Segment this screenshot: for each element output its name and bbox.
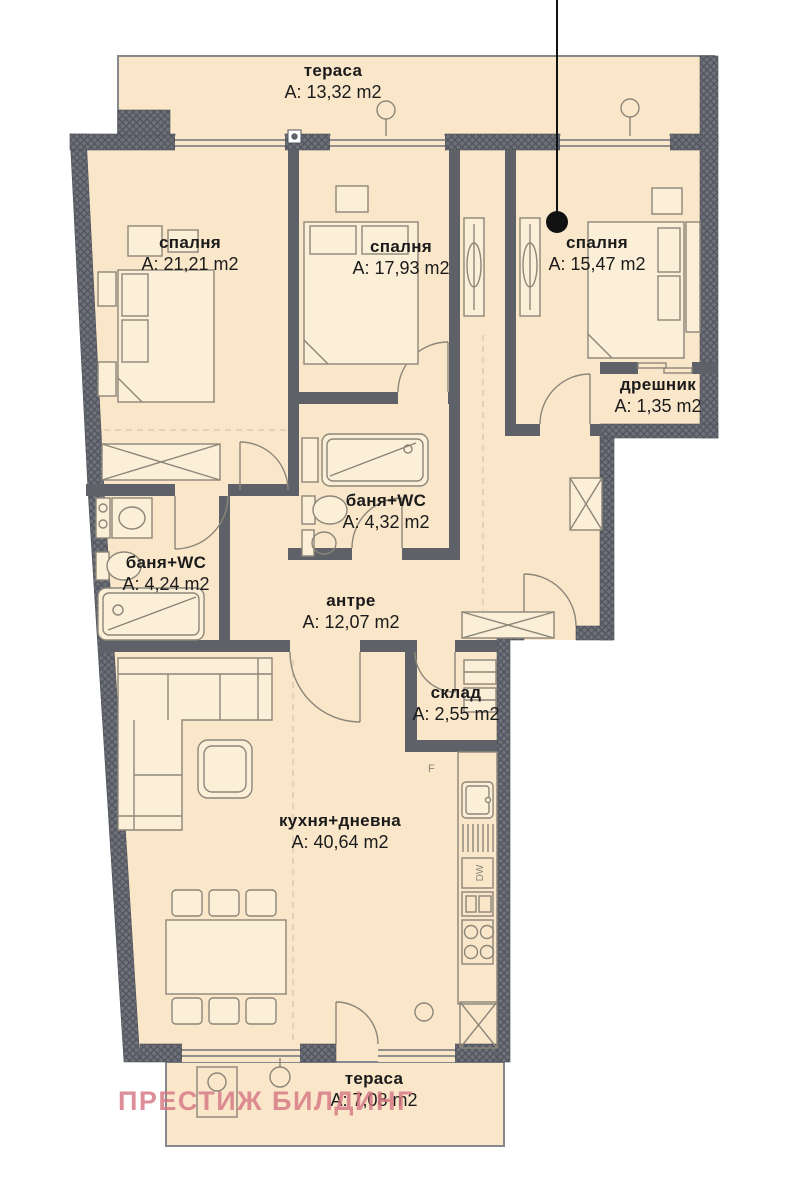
terrace-top-floor <box>118 56 714 138</box>
column-marker-dot <box>291 133 297 139</box>
wardrobe-icon-hall <box>462 612 554 638</box>
wall-bottom-pier <box>140 1044 182 1062</box>
shaft-icon <box>570 478 602 530</box>
room-label-terrace-top: тераса A: 13,32 m2 <box>284 60 381 104</box>
wall-top-pier <box>70 134 175 150</box>
wall-mid-right <box>600 438 614 640</box>
room-label-bath-left: баня+WC A: 4,24 m2 <box>122 552 209 596</box>
watermark: ПРЕСТИЖ БИЛДИНГ <box>118 1086 414 1117</box>
fridge-marker-label: F <box>428 763 435 775</box>
wall-closet-bottom <box>600 424 718 438</box>
wall-top-pier <box>445 134 560 150</box>
room-label-closet: дрешник A: 1,35 m2 <box>614 374 701 418</box>
room-label-bedroom-1: спалня A: 21,21 m2 <box>141 232 238 276</box>
sink-icon-bath-left <box>96 498 152 538</box>
room-label-storage: склад A: 2,55 m2 <box>412 682 499 726</box>
dining-set-icon <box>166 890 286 1024</box>
wall-bottom-pier <box>300 1044 336 1062</box>
dishwasher-label: DW <box>475 864 486 881</box>
room-label-bedroom-3: спалня A: 15,47 m2 <box>548 232 645 276</box>
room-label-hall: антре A: 12,07 m2 <box>302 590 399 634</box>
room-label-bedroom-2: спалня A: 17,93 m2 <box>352 236 449 280</box>
wardrobe-icon-bedroom-1 <box>102 444 220 480</box>
toilet-icon-bath-right <box>302 496 347 524</box>
wall-entry <box>576 626 612 640</box>
wall-right <box>700 56 718 438</box>
floor-plan: DW F тераса A: 13,32 m2 спалня A: 21,21 … <box>0 0 796 1200</box>
room-label-bath-right: баня+WC A: 4,32 m2 <box>342 490 429 534</box>
room-label-kitchen: кухня+дневна A: 40,64 m2 <box>279 810 401 854</box>
terrace-pier <box>118 110 170 136</box>
